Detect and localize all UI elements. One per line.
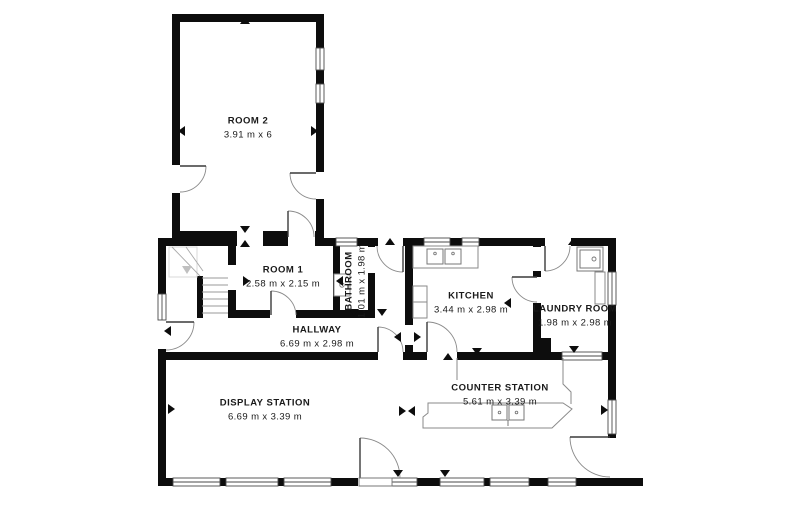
window (490, 478, 529, 486)
wall (315, 238, 336, 246)
room-label-hallway: HALLWAY6.69 m x 2.98 m (280, 325, 354, 350)
door (271, 291, 296, 315)
wall (403, 352, 427, 360)
room-dimensions: 6.69 m x 2.98 m (280, 339, 354, 350)
wall (405, 238, 413, 325)
door (360, 438, 400, 478)
room-dimensions: 6.69 m x 3.39 m (228, 412, 302, 423)
fixtures-layer (169, 246, 605, 486)
direction-marker (164, 326, 171, 336)
direction-marker (377, 309, 387, 316)
direction-marker (240, 226, 250, 233)
door-swing-arc (360, 438, 400, 478)
direction-marker (393, 470, 403, 477)
wall (172, 231, 237, 239)
room-label-room-2: ROOM 23.91 m x 6 (224, 116, 272, 141)
room-label-display-station: DISPLAY STATION6.69 m x 3.39 m (220, 398, 311, 423)
stairs-walk-arrow (182, 266, 192, 274)
room-label-counter-station: COUNTER STATION5.61 m x 3.39 m (451, 383, 548, 408)
window (284, 478, 331, 486)
direction-marker (240, 240, 250, 247)
door-swing-arc (427, 322, 457, 352)
room-dimensions: 2.58 m x 2.15 m (246, 279, 320, 290)
wall (172, 14, 180, 165)
counter-partition-right (563, 358, 571, 404)
direction-marker (440, 470, 450, 477)
window (462, 238, 479, 246)
room-dimensions: 1.98 m x 2.98 m (538, 318, 612, 329)
wall (529, 478, 548, 486)
wall (158, 238, 237, 246)
wall (316, 70, 324, 84)
room-label-laundry-room: LAUNDRY ROOM1.98 m x 2.98 m (533, 304, 617, 329)
direction-marker (168, 404, 175, 414)
door-swing-arc (377, 246, 403, 272)
room-name: LAUNDRY ROOM (533, 304, 617, 315)
window (226, 478, 278, 486)
wall (263, 231, 288, 239)
wall (158, 478, 173, 486)
window (440, 478, 484, 486)
wall (315, 231, 324, 239)
window (548, 478, 576, 486)
door-swing-arc (512, 277, 537, 302)
direction-marker (443, 353, 453, 360)
window (336, 238, 357, 246)
kitchen-fridge (413, 286, 427, 318)
wall (228, 238, 236, 265)
wall (368, 273, 375, 310)
entry-door-sill (359, 478, 392, 486)
wall (608, 238, 616, 272)
door (377, 246, 403, 272)
stairs-treads (202, 278, 228, 313)
room-name: KITCHEN (448, 291, 494, 302)
door (427, 322, 457, 352)
room-dimensions: 1.01 m x 1.98 m (357, 244, 368, 318)
door (166, 322, 194, 350)
wall (228, 310, 270, 318)
direction-marker (601, 405, 608, 415)
window (392, 478, 417, 486)
room-dimensions: 5.61 m x 3.39 m (463, 397, 537, 408)
floor-plan-canvas: ROOM 23.91 m x 6ROOM 12.58 m x 2.15 mBAT… (0, 0, 800, 522)
room-label-room-1: ROOM 12.58 m x 2.15 m (246, 265, 320, 290)
stairs-landing (169, 247, 197, 277)
direction-marker (414, 332, 421, 342)
door-swing-arc (271, 291, 296, 315)
wall (158, 349, 166, 486)
wall (368, 238, 375, 247)
room-dimensions: 3.44 m x 2.98 m (434, 305, 508, 316)
wall (484, 478, 490, 486)
room-dimensions: 3.91 m x 6 (224, 130, 272, 141)
door (288, 211, 314, 237)
wall (405, 345, 413, 352)
door (545, 246, 570, 271)
laundry-counter (595, 272, 605, 304)
window (316, 84, 324, 103)
wall (602, 352, 616, 360)
window (424, 238, 450, 246)
wall (533, 271, 541, 277)
wall (457, 352, 562, 360)
wall (316, 14, 324, 48)
labels-layer: ROOM 23.91 m x 6ROOM 12.58 m x 2.15 mBAT… (220, 116, 617, 423)
wall (220, 478, 226, 486)
door (570, 437, 610, 477)
door (180, 166, 206, 192)
door-swing-arc (570, 437, 610, 477)
wall (450, 238, 462, 246)
window (608, 400, 616, 434)
window (608, 272, 616, 305)
direction-marker (385, 238, 395, 245)
wall (417, 478, 440, 486)
wall (158, 352, 378, 360)
wall (541, 338, 551, 352)
wall (316, 103, 324, 172)
room-name: COUNTER STATION (451, 383, 548, 394)
room-name: DISPLAY STATION (220, 398, 311, 409)
door-swing-arc (180, 166, 206, 192)
direction-marker (408, 406, 415, 416)
wall (158, 238, 166, 294)
room-label-kitchen: KITCHEN3.44 m x 2.98 m (434, 291, 508, 316)
wall (172, 14, 324, 22)
window (562, 352, 602, 360)
wall (576, 478, 643, 486)
wall (263, 238, 288, 246)
door (290, 173, 316, 199)
direction-marker (399, 406, 406, 416)
room-label-bathroom: BATHROOM1.01 m x 1.98 m (344, 244, 368, 318)
door (512, 277, 537, 302)
laundry-sink (577, 247, 603, 271)
window (158, 294, 166, 320)
room-name: BATHROOM (344, 251, 355, 310)
wall (278, 478, 284, 486)
window (316, 48, 324, 70)
window (173, 478, 220, 486)
wall (331, 478, 358, 486)
room-name: HALLWAY (292, 325, 341, 336)
door-swing-arc (166, 322, 194, 350)
floor-plan: ROOM 23.91 m x 6ROOM 12.58 m x 2.15 mBAT… (0, 0, 800, 522)
door-swing-arc (288, 211, 314, 237)
door-swing-arc (545, 246, 570, 271)
room-name: ROOM 1 (263, 265, 304, 276)
room-name: ROOM 2 (228, 116, 268, 127)
wall (197, 276, 203, 318)
wall (533, 238, 541, 247)
door-swing-arc (290, 173, 316, 199)
